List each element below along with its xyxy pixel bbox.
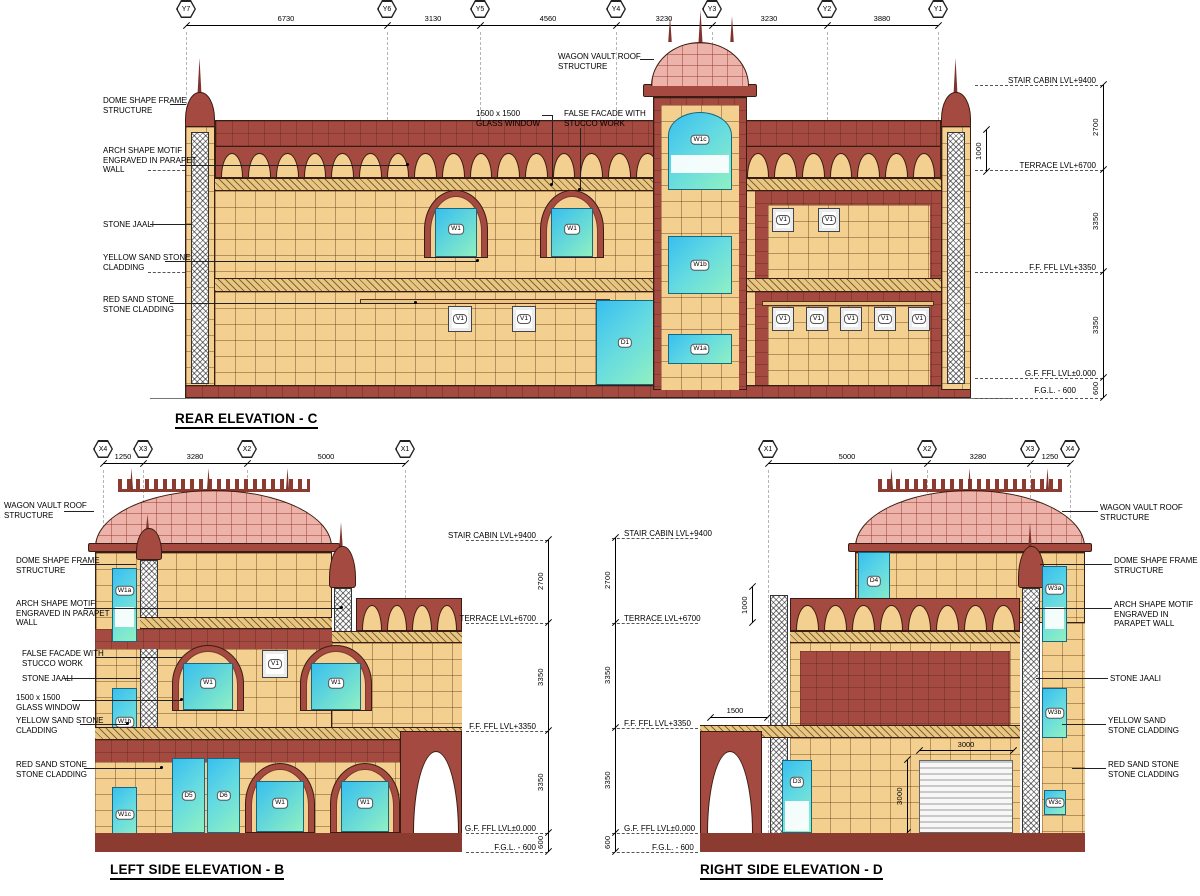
level-label-terrace: TERRACE LVL+6700 <box>624 614 701 623</box>
arch-motif <box>747 153 770 177</box>
grid-bubble-y4: Y4 <box>606 0 626 18</box>
arch-motif <box>852 605 875 630</box>
left-grid-dimline <box>103 463 405 464</box>
floor-dim: 600 <box>1091 373 1100 403</box>
arch-motif <box>580 153 603 177</box>
leader <box>96 657 182 658</box>
arch-motif <box>885 153 908 177</box>
floor-dim: 2700 <box>603 565 612 595</box>
floor-dim: 2700 <box>1091 112 1100 142</box>
tick <box>709 22 716 29</box>
level-line-terrace <box>612 623 698 624</box>
right-dim: 3280 <box>948 452 1008 461</box>
floor-dim: 2700 <box>536 566 545 596</box>
leader <box>1062 724 1106 725</box>
level-label-terrace: TERRACE LVL+6700 <box>978 161 1096 170</box>
arch-motif <box>796 605 819 630</box>
door-d5: D5 <box>172 758 205 833</box>
leader <box>165 261 478 262</box>
right-dim: 5000 <box>817 452 877 461</box>
porch-arch <box>700 731 762 845</box>
leader <box>180 165 408 166</box>
leader <box>1040 564 1112 565</box>
note-wagon-roof: WAGON VAULT ROOF STRUCTURE <box>558 52 646 71</box>
minaret-dome <box>329 546 356 588</box>
level-label-stair: STAIR CABIN LVL+9400 <box>420 531 536 540</box>
arch-motif <box>824 605 847 630</box>
arch-motif <box>470 153 493 177</box>
left-dim-chain <box>548 540 549 852</box>
leader-dot <box>340 606 343 609</box>
parapet-dim: 1000 <box>740 590 749 620</box>
tick <box>613 22 620 29</box>
right-title: RIGHT SIDE ELEVATION - D <box>700 862 883 880</box>
rear-dim: 3230 <box>739 14 799 23</box>
leader <box>80 724 128 725</box>
leader-dot <box>126 722 129 725</box>
note-dome-frame: DOME SHAPE FRAME STRUCTURE <box>103 96 195 115</box>
wagon-vault-dome <box>651 42 749 86</box>
arch-motif <box>936 605 959 630</box>
arch-motif <box>553 153 576 177</box>
level-line-fgl <box>975 398 1103 399</box>
level-label-terrace: TERRACE LVL+6700 <box>420 614 536 623</box>
terrace-slab <box>140 617 332 629</box>
rear-dim: 6730 <box>256 14 316 23</box>
ff-slab <box>215 278 941 292</box>
arch-motif <box>964 605 987 630</box>
level-line-terrace <box>975 170 1103 171</box>
leader <box>64 511 94 512</box>
floor-dim: 3350 <box>536 662 545 692</box>
note-glass-window: 1500 x 1500 GLASS WINDOW <box>16 693 80 712</box>
ventilator: V1 <box>262 650 288 678</box>
level-label-ff: F.F. FFL LVL+3350 <box>420 722 536 731</box>
leader <box>80 564 136 565</box>
level-line-gf <box>975 378 1103 379</box>
leader <box>1036 678 1108 679</box>
ventilator: V1 <box>908 307 930 331</box>
level-label-fgl: F.G.L. - 600 <box>958 386 1076 395</box>
leader <box>640 59 654 60</box>
plinth <box>700 833 1085 852</box>
arch-motif <box>525 153 548 177</box>
ventilator: V1 <box>840 307 862 331</box>
leader-dot <box>180 698 183 701</box>
note-red-sand: RED SAND STONE STONE CLADDING <box>16 760 104 779</box>
leader <box>552 115 553 185</box>
grid-bubble-x1: X1 <box>758 440 778 458</box>
wagon-vault-roof <box>855 490 1085 547</box>
note-arch-motif: ARCH SHAPE MOTIF ENGRAVED IN PARAPET WAL… <box>1114 600 1198 629</box>
leader <box>1062 511 1098 512</box>
parapet-dimline <box>986 130 987 172</box>
right-dim-chain <box>615 538 616 852</box>
leader <box>84 768 162 769</box>
right-gridline-x1 <box>768 470 769 848</box>
shutter-height-dim: 3000 <box>895 781 904 811</box>
level-line-terrace <box>466 623 548 624</box>
level-line-gf <box>612 833 698 834</box>
tower-window-mid: W1b <box>668 236 732 294</box>
note-wagon-roof: WAGON VAULT ROOF STRUCTURE <box>1100 503 1192 522</box>
ventilator: V1 <box>874 307 896 331</box>
rear-dim: 3230 <box>634 14 694 23</box>
note-dome-frame: DOME SHAPE FRAME STRUCTURE <box>16 556 108 575</box>
leader <box>1035 608 1112 609</box>
ventilator: V1 <box>806 307 828 331</box>
tick <box>765 460 772 467</box>
finial-spike <box>728 16 736 42</box>
ventilator: V1 <box>772 307 794 331</box>
arch-motif <box>913 153 936 177</box>
level-line-stair <box>612 538 698 539</box>
left-dim: 5000 <box>296 452 356 461</box>
level-label-ff: F.F. FFL LVL+3350 <box>624 719 691 728</box>
level-line-ff <box>975 272 1103 273</box>
tick <box>1067 460 1074 467</box>
door-d3: D3 <box>782 760 812 833</box>
rear-parapet-arches <box>215 146 941 178</box>
tick <box>183 22 190 29</box>
arch-motif <box>992 605 1015 630</box>
floor-dim: 3350 <box>1091 310 1100 340</box>
right-grid-dimline <box>768 463 1070 464</box>
tick <box>477 22 484 29</box>
parapet-dim: 1000 <box>974 136 983 166</box>
grid-bubble-y3: Y3 <box>702 0 722 18</box>
arch-motif <box>387 605 407 630</box>
wagon-vault-roof <box>95 490 332 547</box>
rear-grid-dimline <box>186 25 938 26</box>
note-yellow-sand: YELLOW SAND STONE CLADDING <box>1108 716 1194 735</box>
floor-dim: 3350 <box>603 660 612 690</box>
level-label-ff: F.F. FFL LVL+3350 <box>978 263 1096 272</box>
rolling-shutter <box>919 760 1013 833</box>
note-dome-frame: DOME SHAPE FRAME STRUCTURE <box>1114 556 1198 575</box>
door-d1: D1 <box>596 300 654 385</box>
tick <box>824 22 831 29</box>
rear-dim: 4560 <box>518 14 578 23</box>
plinth <box>185 385 971 398</box>
level-line-stair <box>975 85 1103 86</box>
note-arch-motif: ARCH SHAPE MOTIF ENGRAVED IN PARAPET WAL… <box>103 146 207 175</box>
roof-cornice <box>848 543 1092 552</box>
porch-dim: 1500 <box>705 706 765 715</box>
ventilator: V1 <box>818 208 840 232</box>
finial-spike <box>696 10 705 42</box>
shutter-width-dim: 3000 <box>936 740 996 749</box>
tick <box>402 460 409 467</box>
shutter-height-dimline <box>907 760 908 833</box>
floor-dim: 3350 <box>536 767 545 797</box>
edge-window-top: W3a <box>1042 566 1067 642</box>
arch-motif <box>414 153 437 177</box>
floor-dim: 600 <box>536 827 545 857</box>
leader-dot <box>550 183 553 186</box>
leader <box>84 608 342 609</box>
grid-bubble-y5: Y5 <box>470 0 490 18</box>
level-line-fgl <box>612 852 698 853</box>
rear-title: REAR ELEVATION - C <box>175 411 318 429</box>
arch-motif <box>830 153 853 177</box>
tick <box>1027 460 1034 467</box>
note-stone-jaali: STONE JAALI <box>1110 674 1182 684</box>
right-parapet-arches <box>790 598 1020 631</box>
leader <box>542 115 552 116</box>
level-label-gf: G.F. FFL LVL±0.000 <box>978 369 1096 378</box>
edge-window-mid: W3b <box>1042 688 1067 738</box>
terrace-slab <box>790 631 1020 643</box>
ventilator: V1 <box>448 306 472 332</box>
left-dim: 3280 <box>165 452 225 461</box>
porch-dimline <box>710 717 767 718</box>
note-glass-window: 1500 x 1500 GLASS WINDOW <box>476 109 540 128</box>
finial-spike <box>951 58 960 94</box>
note-false-facade: FALSE FACADE WITH STUCCO WORK <box>22 649 108 668</box>
arch-motif <box>880 605 903 630</box>
shutter-width-dimline <box>919 750 1013 751</box>
tower-window-top: W1c <box>668 112 732 190</box>
grid-bubble-x1: X1 <box>395 440 415 458</box>
grid-bubble-y6: Y6 <box>377 0 397 18</box>
leader-dot <box>578 188 581 191</box>
leader-dot <box>406 163 409 166</box>
door-d6: D6 <box>207 758 240 833</box>
arch-motif <box>802 153 825 177</box>
leader <box>580 128 581 190</box>
leader <box>150 224 192 225</box>
tick <box>100 460 107 467</box>
right-upper-wall <box>800 651 1010 731</box>
level-line-ff <box>612 728 698 729</box>
floor-dim: 3350 <box>603 765 612 795</box>
grid-bubble-x2: X2 <box>917 440 937 458</box>
leader <box>72 700 182 701</box>
leader <box>170 303 416 304</box>
tick <box>935 22 942 29</box>
tick <box>749 619 756 626</box>
level-label-stair: STAIR CABIN LVL+9400 <box>624 529 712 538</box>
elevation-sheet: 6730 3130 4560 3230 3230 3880 Y7 Y6 Y5 Y… <box>0 0 1200 896</box>
tick <box>924 460 931 467</box>
tick <box>707 714 714 721</box>
level-label-gf: G.F. FFL LVL±0.000 <box>624 824 695 833</box>
stone-jaali-strip <box>1022 588 1040 845</box>
edge-window-low: W3c <box>1044 790 1066 815</box>
level-line-ff <box>466 731 548 732</box>
note-red-sand: RED SAND STONE STONE CLADDING <box>103 295 191 314</box>
rear-dim: 3130 <box>403 14 463 23</box>
leader-dot <box>414 301 417 304</box>
level-label-stair: STAIR CABIN LVL+9400 <box>978 76 1096 85</box>
corner-tower-dome <box>941 92 971 128</box>
tick <box>1100 394 1107 401</box>
plinth <box>95 833 462 852</box>
floor-dim: 600 <box>603 827 612 857</box>
tower-window-low: W1a <box>668 334 732 364</box>
grid-bubble-y2: Y2 <box>817 0 837 18</box>
arch-motif <box>908 605 931 630</box>
rear-dim-chain <box>1103 85 1104 398</box>
note-red-sand: RED SAND STONE STONE CLADDING <box>1108 760 1194 779</box>
left-title: LEFT SIDE ELEVATION - B <box>110 862 284 880</box>
roof-cornice <box>88 543 340 552</box>
arch-motif <box>608 153 631 177</box>
tick <box>545 848 552 855</box>
edge-window-top: W1a <box>112 568 137 642</box>
string-course <box>762 301 934 306</box>
leader <box>1072 768 1106 769</box>
parapet-dimline <box>752 587 753 623</box>
arch-motif <box>497 153 520 177</box>
stone-jaali-strip <box>947 132 965 384</box>
arch-motif <box>774 153 797 177</box>
grid-bubble-y7: Y7 <box>176 0 196 18</box>
ground-line <box>150 398 1010 399</box>
leader-dot <box>160 766 163 769</box>
level-label-fgl: F.G.L. - 600 <box>652 843 694 852</box>
tick <box>384 22 391 29</box>
rear-dim: 3880 <box>852 14 912 23</box>
ventilator: V1 <box>512 306 536 332</box>
leader-dot <box>476 259 479 262</box>
ventilator: V1 <box>772 208 794 232</box>
arch-motif <box>857 153 880 177</box>
grid-bubble-y1: Y1 <box>928 0 948 18</box>
note-yellow-sand: YELLOW SAND STONE CLADDING <box>103 253 191 272</box>
level-line-stair <box>466 540 548 541</box>
floor-dim: 3350 <box>1091 206 1100 236</box>
grid-bubble-x2: X2 <box>237 440 257 458</box>
arch-motif <box>362 605 382 630</box>
leader <box>64 678 140 679</box>
leader <box>170 104 186 105</box>
tick <box>140 460 147 467</box>
finial-spike <box>195 58 204 94</box>
terrace-slab <box>332 631 462 643</box>
level-label-fgl: F.G.L. - 600 <box>420 843 536 852</box>
note-false-facade: FALSE FACADE WITH STUCCO WORK <box>564 109 646 128</box>
tick <box>244 460 251 467</box>
level-label-gf: G.F. FFL LVL±0.000 <box>420 824 536 833</box>
arch-motif <box>442 153 465 177</box>
note-yellow-sand: YELLOW SAND STONE CLADDING <box>16 716 104 735</box>
note-arch-motif: ARCH SHAPE MOTIF ENGRAVED IN PARAPET WAL… <box>16 599 112 628</box>
